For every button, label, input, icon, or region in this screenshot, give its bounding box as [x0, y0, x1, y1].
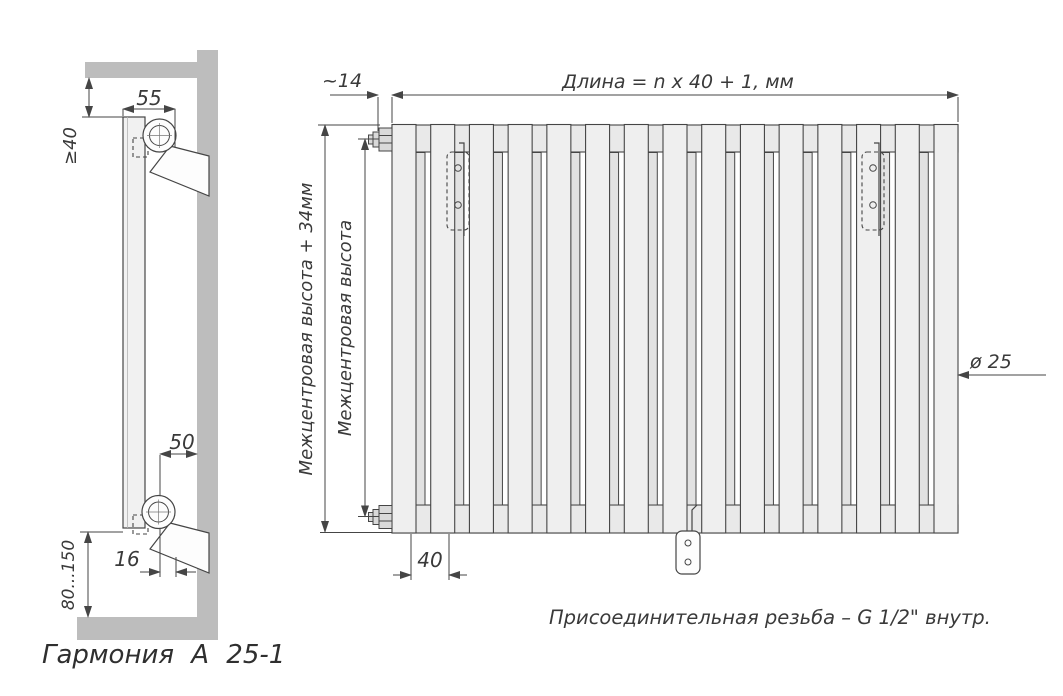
dim-end-offset: ~14	[322, 70, 392, 131]
front-tube	[508, 125, 532, 534]
front-tube	[392, 125, 416, 534]
front-tube	[779, 125, 803, 534]
front-tube	[431, 125, 455, 534]
front-tube	[663, 125, 687, 534]
drawing-svg: 55 ≥40 50 16	[0, 0, 1063, 696]
dim-55-label: 55	[136, 86, 161, 110]
thread-caption: Присоединительная резьба – G 1/2" внутр.	[549, 606, 991, 629]
dim-length: Длина = n x 40 + 1, мм	[392, 71, 958, 122]
dim-ge40: ≥40	[60, 78, 123, 165]
radiator-front-tubes	[392, 125, 958, 534]
front-tube	[895, 125, 919, 534]
front-tube	[857, 125, 881, 534]
front-tube	[934, 125, 958, 534]
front-tube	[547, 125, 571, 534]
dim-length-label: Длина = n x 40 + 1, мм	[561, 71, 794, 93]
model-label: Гармония А 25-1	[42, 640, 285, 670]
side-bracket-bottom	[150, 523, 209, 573]
dim-diameter-label: ø 25	[969, 351, 1012, 373]
side-tube	[123, 117, 145, 528]
dim-height-inner: Межцентровая высота	[335, 139, 379, 517]
front-tube	[702, 125, 726, 534]
dim-50: 50	[160, 430, 197, 496]
radiator-technical-drawing: 55 ≥40 50 16	[0, 0, 1063, 696]
dim-diameter: ø 25	[958, 351, 1046, 375]
pipe-section-bottom	[142, 496, 175, 529]
side-view: 55 ≥40 50 16	[59, 50, 218, 640]
dim-50-label: 50	[169, 430, 194, 454]
front-tube	[469, 125, 493, 534]
front-tube	[586, 125, 610, 534]
floor	[77, 617, 218, 640]
dim-80-150: 80...150	[59, 532, 123, 617]
ceiling	[85, 62, 197, 78]
dim-height-inner-label: Межцентровая высота	[335, 220, 356, 436]
dim-height-outer-label: Межцентровая высота + 34мм	[296, 183, 317, 476]
front-tube	[740, 125, 764, 534]
pipe-section-top	[143, 119, 176, 152]
dim-end-offset-label: ~14	[322, 70, 362, 92]
front-tube	[624, 125, 648, 534]
dim-80-150-label: 80...150	[59, 540, 79, 610]
side-bracket-top	[150, 146, 209, 196]
dim-ge40-label: ≥40	[60, 127, 81, 165]
front-tube	[818, 125, 842, 534]
dim-16-label: 16	[114, 547, 139, 571]
front-view: ~14 Длина = n x 40 + 1, мм Межцентровая …	[296, 70, 1046, 580]
dim-pitch: 40	[393, 534, 467, 580]
dim-pitch-label: 40	[417, 548, 442, 572]
